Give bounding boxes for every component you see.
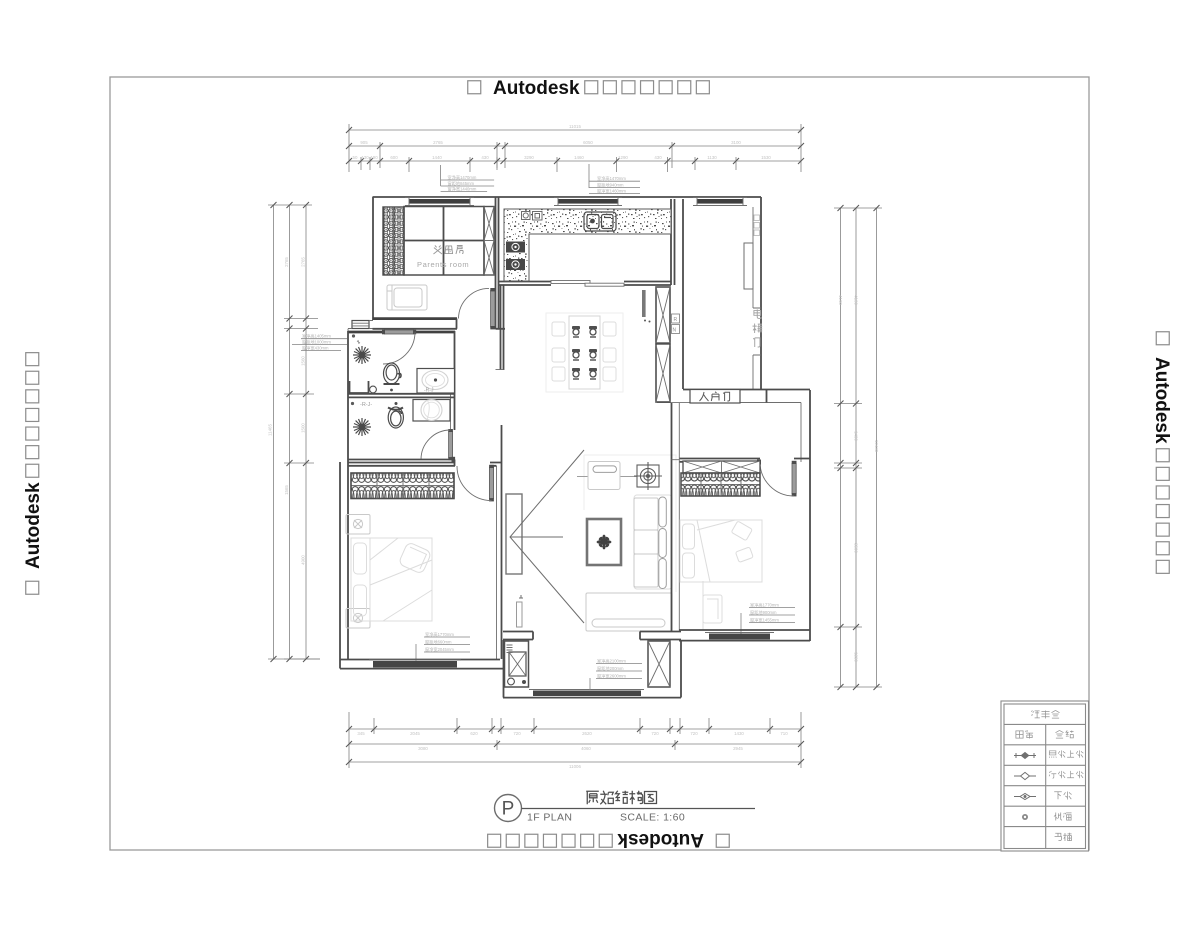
svg-text:1530: 1530 [761,155,771,160]
svg-text:Parents room: Parents room [417,260,469,269]
svg-text:室净高1770mm: 室净高1770mm [425,631,454,638]
svg-text:720: 720 [513,731,521,736]
svg-text:720: 720 [651,731,659,736]
svg-text:Autodesk: Autodesk [1151,357,1172,444]
svg-text:Autodesk: Autodesk [23,482,44,569]
svg-text:1330: 1330 [854,652,859,662]
svg-text:4900: 4900 [301,555,306,565]
svg-text:3080: 3080 [418,746,428,751]
svg-text:窗净宽1460mm: 窗净宽1460mm [597,188,626,195]
svg-text:窗距地660mm: 窗距地660mm [425,639,452,646]
svg-text:2945: 2945 [733,746,743,751]
svg-text:1560: 1560 [301,356,306,366]
svg-text:窗距地900mm: 窗距地900mm [750,609,777,616]
svg-text:4190: 4190 [838,295,843,305]
svg-text:P: P [502,799,515,820]
svg-text:室净高1470mm: 室净高1470mm [597,175,626,182]
svg-text:窗净宽2600mm: 窗净宽2600mm [597,673,626,680]
svg-text:室净高2100mm: 室净高2100mm [597,658,626,665]
svg-text:430: 430 [481,155,489,160]
svg-text:R: R [674,317,678,323]
svg-text:12430: 12430 [874,440,879,453]
svg-text:窗净宽430mm: 窗净宽430mm [302,345,329,352]
svg-text:430: 430 [654,155,662,160]
svg-text:室净高1770mm: 室净高1770mm [750,602,779,609]
svg-text:2620: 2620 [582,731,592,736]
svg-text:室净高1470mm: 室净高1470mm [448,174,477,181]
svg-text:2765: 2765 [301,257,306,267]
svg-text:2765: 2765 [284,257,289,267]
svg-text:190: 190 [370,155,378,160]
svg-text:Autodesk: Autodesk [493,78,580,99]
svg-text:1440: 1440 [432,155,442,160]
svg-text:1400: 1400 [854,431,859,441]
svg-text:1130: 1130 [707,155,717,160]
svg-text:4190: 4190 [854,295,859,305]
svg-text:620: 620 [470,731,478,736]
svg-text:4060: 4060 [581,746,591,751]
svg-text:N: N [673,328,677,334]
svg-text:窗净宽2045mm: 窗净宽2045mm [425,646,454,653]
svg-text:710: 710 [780,731,788,736]
svg-text:50: 50 [353,155,358,160]
svg-text:11465: 11465 [268,424,273,436]
svg-text:1500: 1500 [301,423,306,433]
svg-text:1460: 1460 [574,155,584,160]
svg-text:窗距地940mm: 窗距地940mm [597,182,624,189]
svg-text:1430: 1430 [734,731,744,736]
svg-text:2045: 2045 [410,731,420,736]
svg-text:-R-J: -R-J [424,388,434,394]
svg-text:窗距地1000mm: 窗距地1000mm [302,339,331,346]
svg-text:3100: 3100 [731,140,741,145]
svg-text:窗净宽1440mm: 窗净宽1440mm [448,185,477,192]
svg-text:345: 345 [357,731,365,736]
svg-text:1290: 1290 [618,155,628,160]
svg-text:11006: 11006 [569,764,581,769]
svg-text:905: 905 [360,140,368,145]
svg-text:3500: 3500 [854,543,859,553]
svg-text:720: 720 [690,731,698,736]
svg-text:SCALE: 1:60: SCALE: 1:60 [620,812,685,824]
svg-text:窗距地200mm: 窗距地200mm [597,665,624,672]
svg-text:6050: 6050 [583,140,593,145]
svg-text:600: 600 [390,155,398,160]
svg-text:1565: 1565 [284,485,289,495]
svg-text:1F PLAN: 1F PLAN [527,812,572,824]
svg-text:11015: 11015 [569,124,581,129]
svg-text:130: 130 [361,155,369,160]
svg-text:2765: 2765 [433,140,443,145]
svg-text:-R-J-: -R-J- [360,402,372,408]
svg-text:窗净宽1455mm: 窗净宽1455mm [750,617,779,624]
svg-text:3290: 3290 [524,155,534,160]
svg-text:Autodesk: Autodesk [617,829,704,850]
